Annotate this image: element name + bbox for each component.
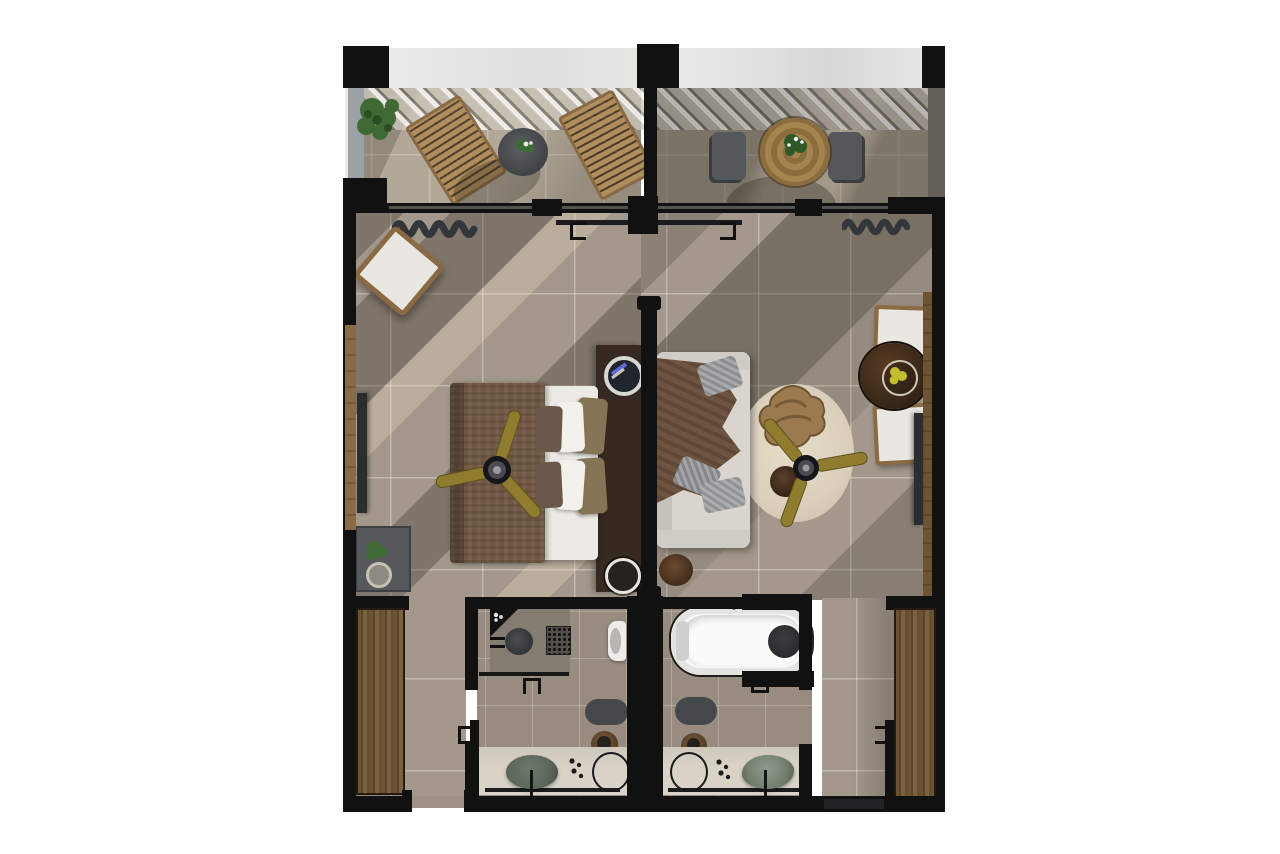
toilet [608, 621, 626, 661]
slider-handle-right [720, 222, 736, 240]
faucet-right [764, 770, 767, 796]
central-wall-cap-top [637, 296, 661, 310]
bath-left-door-handle [458, 726, 474, 744]
round-stool [659, 554, 693, 586]
central-wall [641, 296, 657, 600]
nightstand-top-decor [604, 356, 644, 396]
ceiling-fan-bedroom [432, 405, 562, 535]
floor-plan-canvas [0, 0, 1280, 854]
bath-left-side-wall [465, 597, 478, 690]
tub-headrest [676, 621, 689, 661]
sofa-arm-bottom [656, 530, 750, 548]
entry-right-closed-door [824, 799, 884, 809]
wall-block-top-right [922, 46, 945, 88]
entry-left-jamb-2 [464, 790, 474, 812]
terrace-chair-1 [712, 132, 746, 180]
ceiling-fan-livingroom [741, 403, 871, 533]
round-mirror-right [670, 752, 708, 792]
toilet-seat [610, 628, 621, 654]
window-wall-post-1 [532, 199, 562, 216]
terrace-chair-2 [828, 132, 862, 180]
side-table-plant [514, 136, 536, 158]
entry-left-jamb-1 [402, 790, 412, 812]
rain-shower-grate [546, 626, 571, 655]
wall-tv-livingroom [914, 413, 923, 525]
wall-block-top-left [343, 46, 389, 88]
shower-valve-2 [490, 645, 505, 648]
plumbing-shaft [627, 596, 663, 812]
toiletries-right [712, 756, 734, 782]
window-wall-post-right [888, 197, 945, 214]
corner-plant [352, 92, 406, 148]
faucet-left [530, 770, 533, 796]
nightstand-bottom-cup [605, 558, 641, 594]
toiletries-left [566, 756, 588, 782]
left-window-frame [345, 325, 356, 530]
minibar-tray [366, 562, 392, 588]
shower-door-handle [523, 678, 541, 694]
curtain-right [842, 216, 920, 236]
tub-screen-handle [751, 677, 769, 693]
minibar-plant [364, 538, 388, 562]
window-wall-post-2 [795, 199, 822, 216]
wardrobe-left [356, 608, 405, 795]
shower-valve-1 [490, 637, 505, 640]
wall-block-top-center [637, 44, 679, 88]
entry-right-door-handle [875, 726, 891, 744]
bottom-wall-left-segment [343, 796, 410, 812]
bath-left-top-wall [477, 597, 627, 609]
right-parapet-shadow [928, 86, 945, 204]
wall-tv-bedroom [357, 393, 367, 513]
shower-shelf-bottles [492, 611, 506, 625]
bath-right-side-wall [799, 597, 812, 690]
terrace-table-plant [780, 130, 810, 160]
tub-tray [768, 625, 801, 658]
bath-mat-left [585, 699, 628, 725]
wood-panel-right-wall [923, 292, 932, 598]
shower-drain-stool [505, 628, 533, 655]
bath-right-side-wall-lower [799, 744, 812, 796]
entry-left-threshold [410, 796, 468, 808]
slider-handle-left [570, 222, 586, 240]
bath-mat-right [675, 697, 717, 725]
wardrobe-right [894, 608, 936, 800]
central-wall-upper-stub [628, 196, 658, 234]
shower-glass-screen [479, 672, 569, 676]
fruit-bowl [882, 360, 918, 396]
round-mirror-left [592, 752, 630, 792]
